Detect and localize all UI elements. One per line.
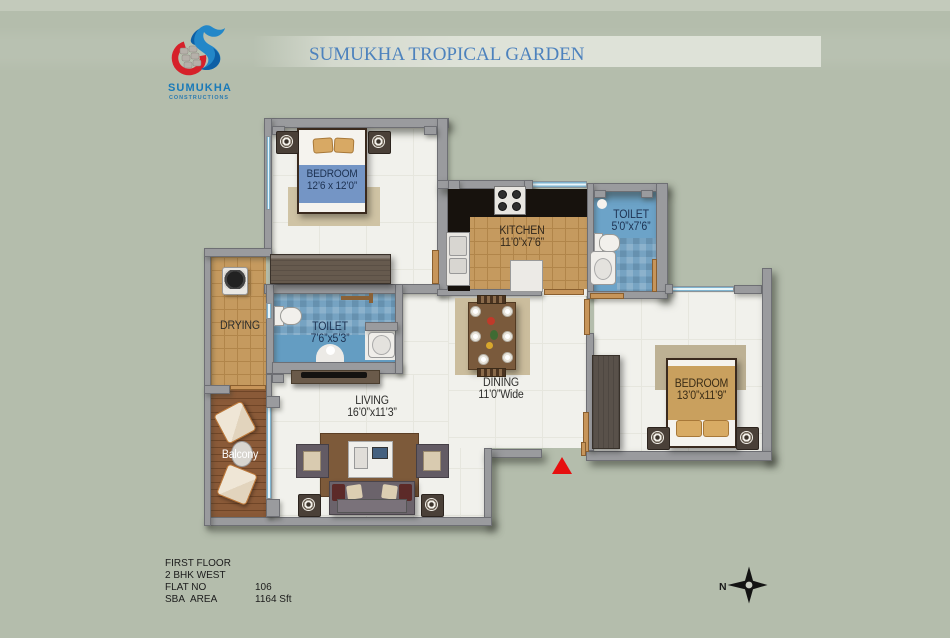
svg-text:CONSTRUCTIONS: CONSTRUCTIONS — [169, 95, 229, 100]
svg-text:N: N — [719, 581, 727, 593]
svg-text:SUMUKHA: SUMUKHA — [168, 82, 232, 94]
